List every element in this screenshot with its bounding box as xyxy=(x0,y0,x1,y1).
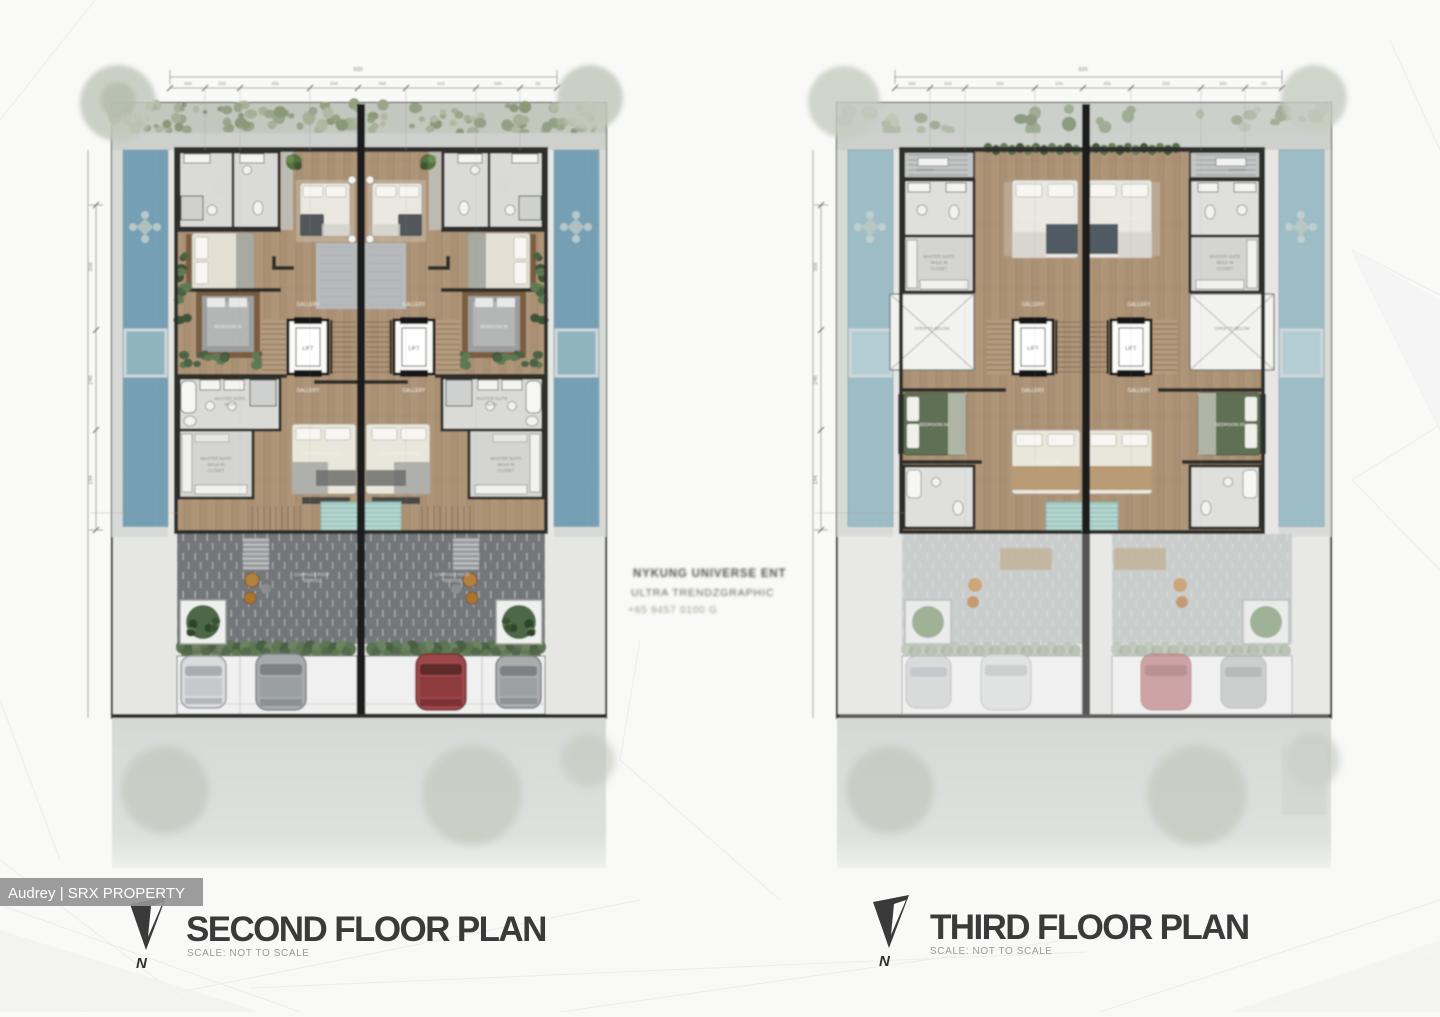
svg-text:N: N xyxy=(136,955,148,972)
svg-text:MASTER SUITE 02: MASTER SUITE 02 xyxy=(1104,216,1144,221)
svg-text:948: 948 xyxy=(330,81,338,86)
svg-text:358: 358 xyxy=(88,262,94,271)
svg-text:925: 925 xyxy=(1162,81,1170,86)
svg-text:BATH: BATH xyxy=(487,402,498,407)
svg-text:WALK IN: WALK IN xyxy=(930,260,947,265)
svg-text:BALCONY: BALCONY xyxy=(917,168,936,172)
svg-text:MASTER SUITE: MASTER SUITE xyxy=(477,396,508,401)
svg-text:WALK IN: WALK IN xyxy=(497,462,514,467)
svg-text:58: 58 xyxy=(1261,81,1267,86)
svg-text:MASTER SUITE B1: MASTER SUITE B1 xyxy=(302,451,343,456)
svg-text:368: 368 xyxy=(996,81,1004,86)
svg-text:925: 925 xyxy=(218,81,226,86)
svg-text:ULTRA TRENDZGRAPHIC: ULTRA TRENDZGRAPHIC xyxy=(631,587,774,599)
svg-text:SECOND FLOOR PLAN: SECOND FLOOR PLAN xyxy=(186,910,546,949)
svg-text:248: 248 xyxy=(88,375,94,384)
svg-text:OPEN TO BELOW: OPEN TO BELOW xyxy=(915,326,950,331)
svg-text:580: 580 xyxy=(184,81,192,86)
svg-text:GALLERY: GALLERY xyxy=(403,388,427,394)
svg-text:BEDROOM 04: BEDROOM 04 xyxy=(919,422,949,427)
svg-text:358: 358 xyxy=(813,262,819,271)
svg-text:LIFT: LIFT xyxy=(1125,346,1137,352)
svg-text:580: 580 xyxy=(494,81,502,86)
svg-text:N: N xyxy=(879,953,891,970)
svg-text:WALK IN: WALK IN xyxy=(207,462,224,467)
svg-text:GALLERY: GALLERY xyxy=(297,302,321,308)
svg-text:Audrey | SRX PROPERTY: Audrey | SRX PROPERTY xyxy=(8,885,185,902)
svg-text:248: 248 xyxy=(813,375,819,384)
svg-text:GALLERY: GALLERY xyxy=(297,388,321,394)
svg-text:194: 194 xyxy=(813,475,819,484)
svg-text:925: 925 xyxy=(437,81,445,86)
svg-text:580: 580 xyxy=(908,81,916,86)
svg-text:MASTER SUITE: MASTER SUITE xyxy=(1210,254,1241,259)
svg-text:CAMPAIGN ROOF: CAMPAIGN ROOF xyxy=(294,572,330,577)
svg-text:GALLERY: GALLERY xyxy=(1022,302,1046,308)
svg-text:MASTER SUITE: MASTER SUITE xyxy=(491,456,522,461)
svg-text:OPEN TO BELOW: OPEN TO BELOW xyxy=(1215,326,1250,331)
svg-text:580: 580 xyxy=(1219,81,1227,86)
svg-text:NYKUNG UNIVERSE ENT: NYKUNG UNIVERSE ENT xyxy=(633,568,786,580)
svg-text:920: 920 xyxy=(1078,67,1087,73)
svg-text:948: 948 xyxy=(1055,81,1063,86)
svg-text:BEDROOM 05: BEDROOM 05 xyxy=(214,324,242,329)
svg-text:CLOSET: CLOSET xyxy=(931,266,948,271)
svg-text:LIFT: LIFT xyxy=(1027,346,1039,352)
svg-text:GALLERY: GALLERY xyxy=(403,302,427,308)
svg-text:SCALE: NOT TO SCALE: SCALE: NOT TO SCALE xyxy=(187,948,310,959)
svg-text:MASTER SUITE B1: MASTER SUITE B1 xyxy=(380,451,421,456)
svg-text:368: 368 xyxy=(271,81,279,86)
svg-text:+65 9457 0100 G: +65 9457 0100 G xyxy=(628,605,718,616)
svg-text:BEDROOM 05: BEDROOM 05 xyxy=(480,324,508,329)
svg-text:GALLERY: GALLERY xyxy=(1022,388,1046,394)
svg-text:BALCONY: BALCONY xyxy=(1229,168,1248,172)
svg-text:58: 58 xyxy=(535,81,541,86)
svg-text:LIFT: LIFT xyxy=(408,346,420,352)
svg-text:TERRACE: TERRACE xyxy=(302,578,322,583)
svg-text:GALLERY: GALLERY xyxy=(1128,388,1152,394)
svg-text:CLOSET: CLOSET xyxy=(1217,266,1234,271)
svg-text:TERRACE: TERRACE xyxy=(442,578,462,583)
svg-text:GALLERY: GALLERY xyxy=(1128,302,1152,308)
svg-text:THIRD FLOOR PLAN: THIRD FLOOR PLAN xyxy=(930,908,1249,947)
svg-text:925: 925 xyxy=(944,81,952,86)
svg-text:194: 194 xyxy=(88,475,94,484)
svg-text:CLOSET: CLOSET xyxy=(498,468,515,473)
svg-text:BEDROOM 02: BEDROOM 02 xyxy=(1031,460,1061,465)
svg-text:CAMPAIGN ROOF: CAMPAIGN ROOF xyxy=(434,572,470,577)
svg-text:920: 920 xyxy=(353,67,362,73)
svg-text:LIFT: LIFT xyxy=(302,346,314,352)
svg-text:SCALE: NOT TO SCALE: SCALE: NOT TO SCALE xyxy=(930,946,1053,957)
svg-text:WALK IN: WALK IN xyxy=(1216,260,1233,265)
svg-text:MASTER SUITE: MASTER SUITE xyxy=(201,456,232,461)
svg-text:BATH: BATH xyxy=(225,402,236,407)
svg-text:MASTER SUITE: MASTER SUITE xyxy=(924,254,955,259)
svg-text:368: 368 xyxy=(378,81,386,86)
svg-text:368: 368 xyxy=(1103,81,1111,86)
svg-text:CLOSET: CLOSET xyxy=(208,468,225,473)
svg-text:MASTER SUITE 01: MASTER SUITE 01 xyxy=(1020,216,1060,221)
svg-text:MASTER SUITE: MASTER SUITE xyxy=(215,396,246,401)
svg-text:BEDROOM 03: BEDROOM 03 xyxy=(1215,422,1245,427)
